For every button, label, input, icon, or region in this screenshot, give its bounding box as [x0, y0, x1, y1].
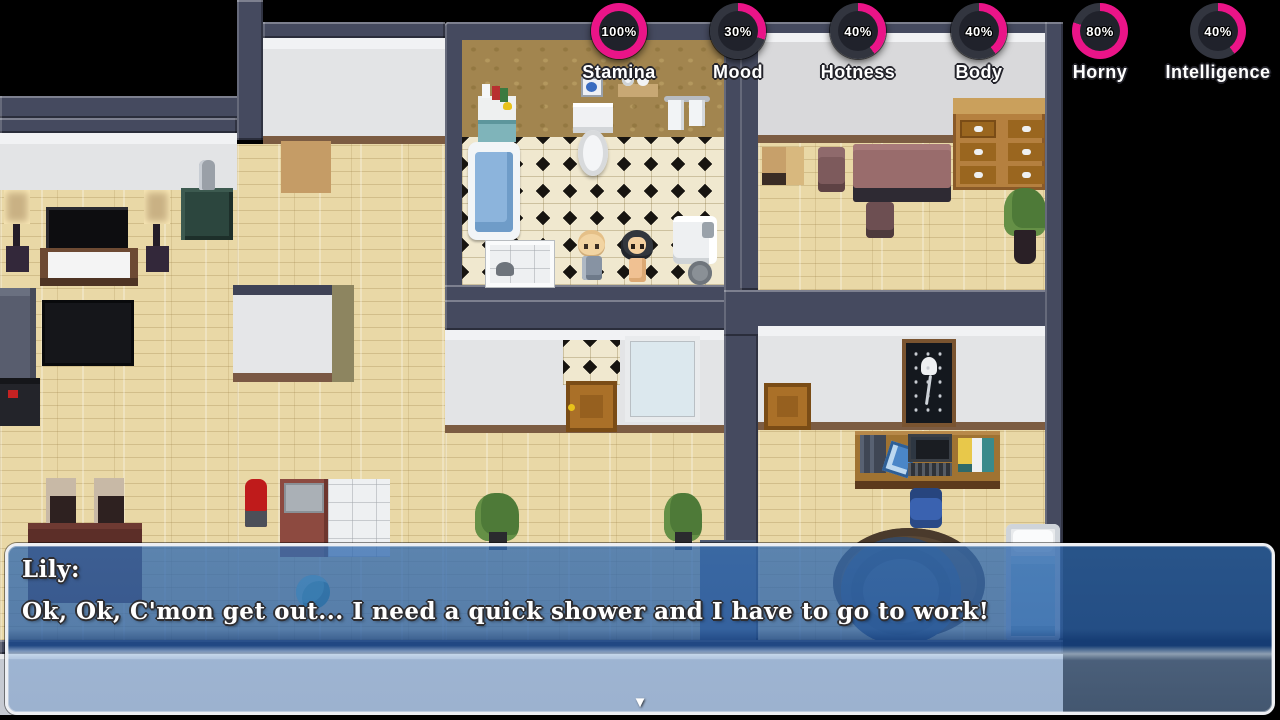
- stereo-device: [0, 378, 40, 426]
- woman-body: [629, 258, 646, 282]
- dialog-box[interactable]: Lily: Ok, Ok, C'mon get out... I need a …: [5, 543, 1275, 715]
- game-viewport[interactable]: 100% Stamina 30% Mood 40% Hotness 40% Bo…: [0, 0, 1280, 720]
- floor-lamp-right-pole: [153, 224, 160, 248]
- green-cabinet: [181, 188, 233, 240]
- horny-label: Horny: [1038, 62, 1162, 83]
- ac-fan-blade: [586, 82, 597, 92]
- study-door[interactable]: [764, 383, 811, 430]
- stamina-ring: 100%: [591, 3, 647, 59]
- floor-lamp-right-base: [146, 246, 169, 272]
- intelligence-percent: 40%: [1198, 11, 1238, 51]
- door-knob: [568, 404, 575, 411]
- man-towel-body: [582, 256, 602, 280]
- wall-corridor-north: [263, 22, 445, 38]
- corridor-shelf: [281, 141, 331, 193]
- bedroom-plant-pot: [1014, 230, 1036, 264]
- stamina-label: Stamina: [557, 62, 681, 83]
- coffee-maker: [245, 479, 267, 527]
- pillar-wall: [233, 285, 332, 382]
- dresser: [953, 98, 1045, 190]
- hotness-percent: 40%: [838, 11, 878, 51]
- floor-lamp-left-base: [6, 246, 29, 272]
- mood-ring: 30%: [710, 3, 766, 59]
- rubber-duck: [503, 102, 512, 110]
- shower-tray: [486, 241, 554, 287]
- character-man[interactable]: [576, 230, 608, 286]
- dialog-speaker: Lily:: [22, 556, 80, 583]
- man-head: [578, 230, 605, 257]
- mood-percent: 30%: [718, 11, 758, 51]
- desktop-keyboard: [908, 463, 952, 476]
- corridor-ceiling-trim: [263, 38, 445, 49]
- dresser-handle: [974, 126, 983, 132]
- tv-stand-cloth: [48, 252, 130, 278]
- floor-lamp-right-shade: [144, 190, 170, 224]
- man-eyes: [584, 244, 588, 249]
- body-percent: 40%: [959, 11, 999, 51]
- bedroom-plant-leaves: [1004, 188, 1046, 236]
- wall-vertical-corridor-left: [237, 0, 263, 140]
- character-woman[interactable]: [620, 230, 656, 286]
- kitchen-sink: [284, 483, 324, 513]
- shower-head: [496, 262, 514, 276]
- horny-ring: 80%: [1072, 3, 1128, 59]
- woman-eyes: [631, 244, 635, 249]
- sink-faucet: [702, 222, 714, 238]
- bedroom-chair: [818, 147, 845, 192]
- bed-double: [853, 144, 951, 202]
- stat-horny: 80% Horny: [1038, 3, 1162, 83]
- dialog-text: Ok, Ok, C'mon get out... I need a quick …: [22, 598, 989, 625]
- living-ceiling-trim: [0, 133, 237, 144]
- bathroom-doorway-tiles: [563, 340, 620, 385]
- paper-roll-shelf: [618, 84, 658, 97]
- poster-speckles: [910, 347, 948, 417]
- pillar-shadow: [330, 285, 354, 382]
- hotness-ring: 40%: [830, 3, 886, 59]
- side-table: [762, 147, 804, 185]
- toilet-bowl: [578, 130, 608, 176]
- trash-bin: [688, 261, 712, 285]
- body-ring: 40%: [951, 3, 1007, 59]
- wall-hallway-north: [445, 300, 740, 330]
- stamina-percent: 100%: [599, 11, 639, 51]
- desk-chair[interactable]: [910, 488, 942, 528]
- stat-body: 40% Body: [917, 3, 1041, 83]
- hallway-window: [625, 336, 700, 422]
- bedroom-stool: [866, 202, 894, 238]
- stat-stamina: 100% Stamina: [557, 3, 681, 83]
- floor-lamp-left-pole: [13, 224, 20, 248]
- continue-indicator-icon[interactable]: ▼: [633, 694, 648, 711]
- stereo-red-light: [8, 390, 18, 398]
- shampoo-bottles: [482, 84, 490, 98]
- body-label: Body: [917, 62, 1041, 83]
- towel: [668, 100, 684, 130]
- wall-top-left-horizontal: [0, 96, 250, 118]
- corridor-north-wall: [263, 49, 445, 136]
- flower-poster: [906, 343, 952, 423]
- desk-books: [958, 438, 994, 472]
- wall-living-north: [0, 118, 237, 133]
- floor-lamp-left-shade: [4, 190, 30, 224]
- toilet-tank: [573, 103, 613, 133]
- stat-intelligence: 40% Intelligence: [1156, 3, 1280, 83]
- towel: [689, 100, 705, 126]
- silver-vase: [199, 160, 215, 190]
- intelligence-ring: 40%: [1190, 3, 1246, 59]
- hotness-label: Hotness: [796, 62, 920, 83]
- mood-label: Mood: [676, 62, 800, 83]
- stat-hotness: 40% Hotness: [796, 3, 920, 83]
- dark-rug: [42, 300, 134, 366]
- bathtub-water: [475, 152, 513, 232]
- study-ceiling-trim: [758, 326, 1045, 336]
- horny-percent: 80%: [1080, 11, 1120, 51]
- stat-mood: 30% Mood: [676, 3, 800, 83]
- intelligence-label: Intelligence: [1156, 62, 1280, 83]
- tv: [46, 207, 128, 253]
- desktop-monitor: [908, 434, 952, 462]
